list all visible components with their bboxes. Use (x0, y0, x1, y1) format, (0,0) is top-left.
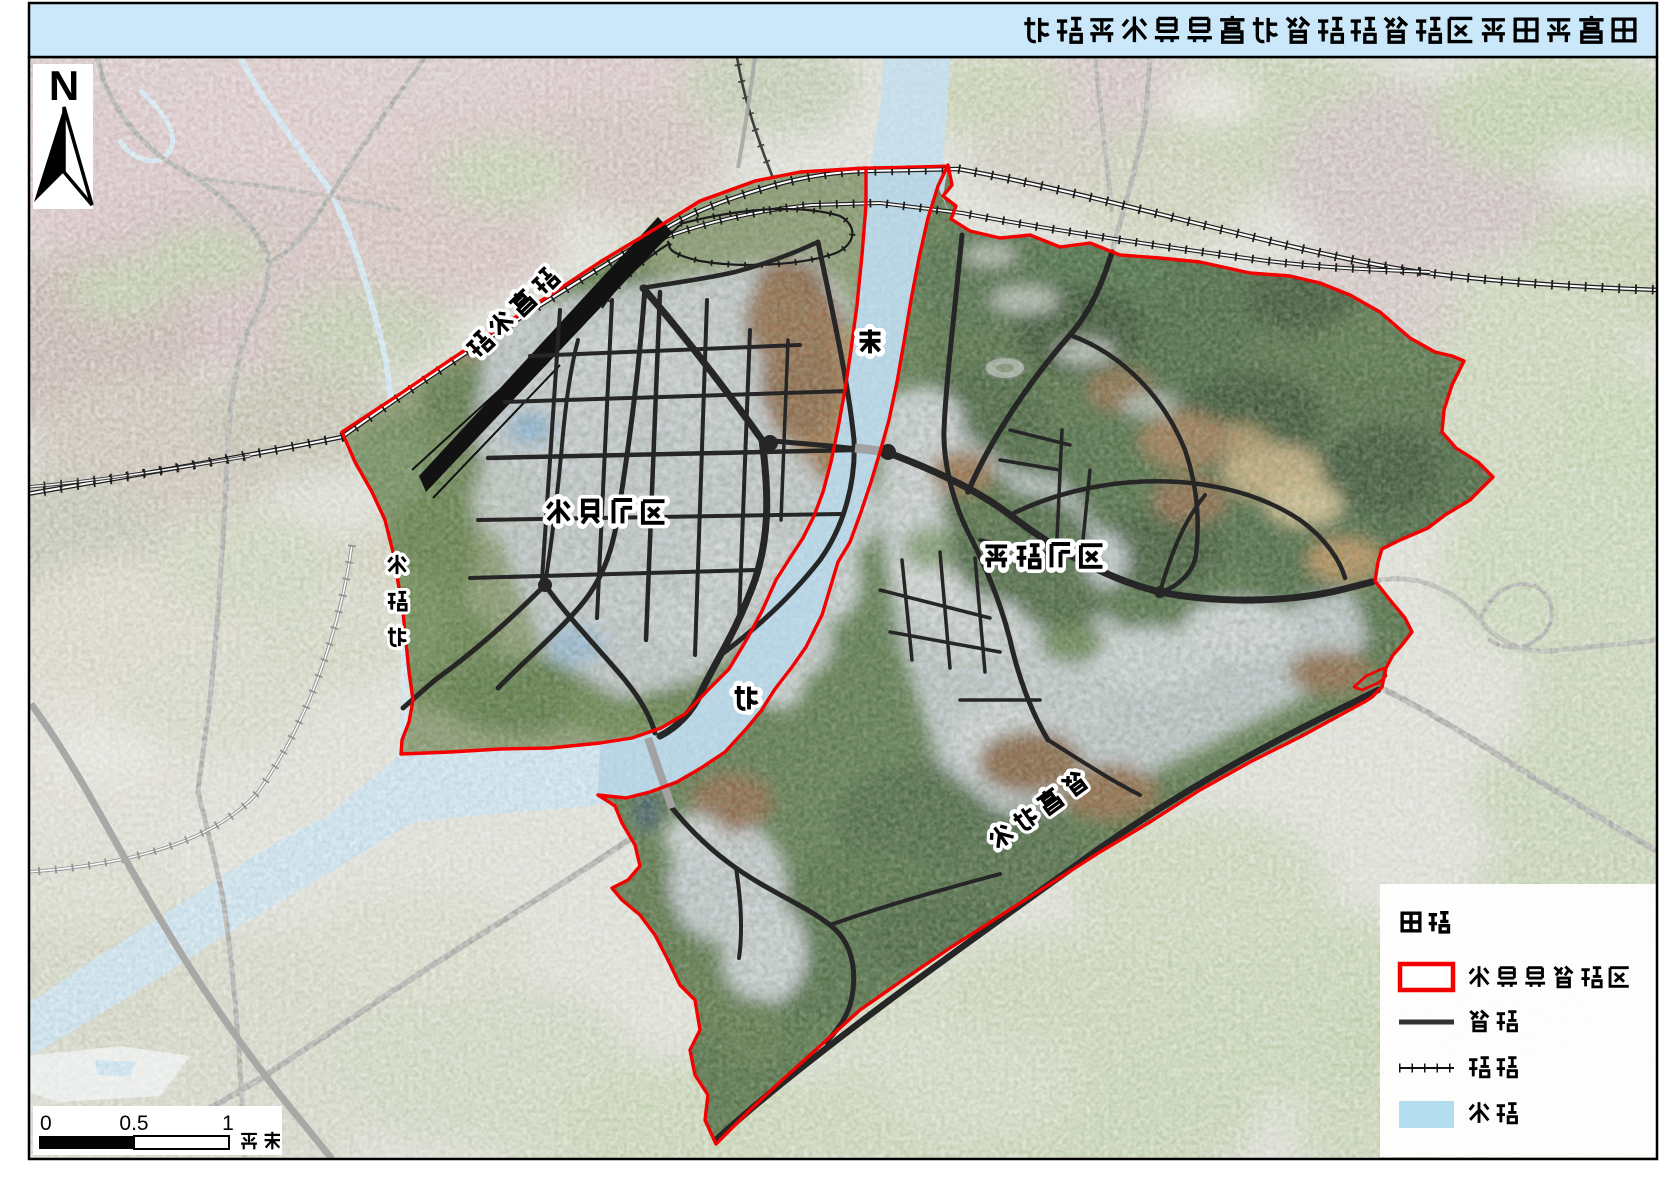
svg-text:0: 0 (40, 1112, 52, 1135)
svg-text:N: N (49, 62, 79, 109)
svg-text:1: 1 (222, 1112, 234, 1135)
svg-text:0.5: 0.5 (119, 1112, 148, 1135)
